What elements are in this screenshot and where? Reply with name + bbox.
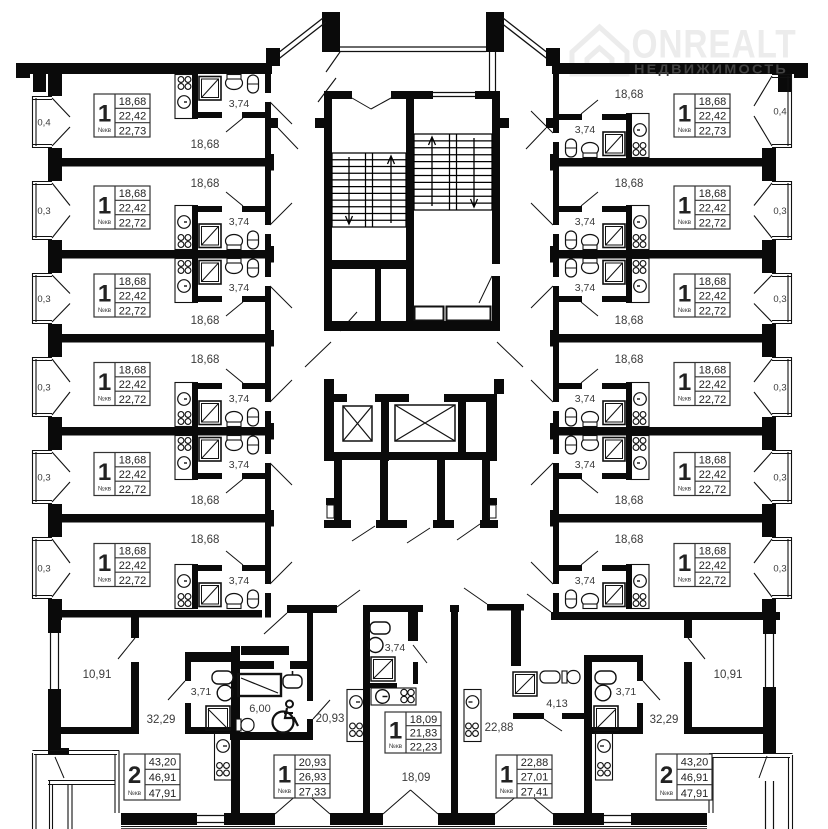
svg-text:18,68: 18,68 <box>191 315 220 327</box>
svg-text:2: 2 <box>660 762 673 789</box>
svg-text:3,74: 3,74 <box>575 124 596 136</box>
svg-text:0,4: 0,4 <box>773 107 786 118</box>
svg-text:22,72: 22,72 <box>699 217 727 229</box>
svg-text:22,72: 22,72 <box>119 575 147 587</box>
svg-text:№кв: №кв <box>98 219 112 226</box>
svg-text:22,42: 22,42 <box>119 291 147 303</box>
svg-text:№кв: №кв <box>660 790 674 797</box>
svg-text:18,68: 18,68 <box>699 96 727 108</box>
svg-text:№кв: №кв <box>500 788 514 795</box>
svg-text:3,74: 3,74 <box>575 216 596 228</box>
svg-text:3,74: 3,74 <box>229 216 250 228</box>
svg-text:1: 1 <box>500 762 513 789</box>
svg-text:18,68: 18,68 <box>119 188 147 200</box>
svg-text:27,33: 27,33 <box>299 786 327 798</box>
svg-text:№кв: №кв <box>98 396 112 403</box>
svg-text:0,3: 0,3 <box>37 294 50 305</box>
svg-text:1: 1 <box>98 281 111 308</box>
svg-text:3,74: 3,74 <box>575 282 596 294</box>
svg-text:3,74: 3,74 <box>229 98 250 110</box>
svg-text:1: 1 <box>678 459 691 486</box>
svg-text:27,41: 27,41 <box>521 786 549 798</box>
svg-text:0,3: 0,3 <box>37 564 50 575</box>
svg-text:18,68: 18,68 <box>119 96 147 108</box>
svg-text:20,93: 20,93 <box>316 713 345 725</box>
svg-text:1: 1 <box>678 369 691 396</box>
svg-text:22,42: 22,42 <box>699 111 727 123</box>
svg-text:22,23: 22,23 <box>410 742 438 754</box>
svg-text:22,72: 22,72 <box>699 484 727 496</box>
svg-text:1: 1 <box>678 101 691 128</box>
svg-text:18,68: 18,68 <box>615 495 644 507</box>
svg-text:№кв: №кв <box>128 790 142 797</box>
svg-text:3,74: 3,74 <box>575 393 596 405</box>
svg-text:0,3: 0,3 <box>773 294 786 305</box>
svg-text:№кв: №кв <box>678 396 692 403</box>
svg-text:3,71: 3,71 <box>191 686 212 698</box>
svg-text:22,42: 22,42 <box>699 379 727 391</box>
svg-text:№кв: №кв <box>98 577 112 584</box>
svg-text:18,68: 18,68 <box>699 455 727 467</box>
svg-text:0,3: 0,3 <box>773 383 786 394</box>
svg-text:18,68: 18,68 <box>699 188 727 200</box>
svg-text:0,3: 0,3 <box>773 206 786 217</box>
svg-text:22,42: 22,42 <box>119 379 147 391</box>
svg-text:№кв: №кв <box>678 127 692 134</box>
svg-text:6,00: 6,00 <box>249 703 270 715</box>
svg-text:32,29: 32,29 <box>147 714 176 726</box>
svg-text:22,72: 22,72 <box>119 305 147 317</box>
svg-text:0,3: 0,3 <box>37 206 50 217</box>
svg-text:22,72: 22,72 <box>699 575 727 587</box>
svg-text:18,68: 18,68 <box>191 534 220 546</box>
svg-text:2: 2 <box>128 762 141 789</box>
svg-text:№кв: №кв <box>389 743 403 750</box>
svg-text:1: 1 <box>389 718 402 745</box>
svg-text:18,09: 18,09 <box>402 772 431 784</box>
svg-text:18,09: 18,09 <box>410 714 438 726</box>
svg-text:22,73: 22,73 <box>699 125 727 137</box>
svg-text:43,20: 43,20 <box>681 757 709 769</box>
svg-text:46,91: 46,91 <box>149 772 177 784</box>
svg-text:№кв: №кв <box>678 307 692 314</box>
svg-text:1: 1 <box>678 550 691 577</box>
svg-text:18,68: 18,68 <box>191 495 220 507</box>
svg-text:26,93: 26,93 <box>299 772 327 784</box>
svg-text:22,42: 22,42 <box>119 469 147 481</box>
svg-text:3,74: 3,74 <box>229 282 250 294</box>
svg-text:22,72: 22,72 <box>119 217 147 229</box>
svg-text:18,68: 18,68 <box>191 178 220 190</box>
svg-text:22,73: 22,73 <box>119 125 147 137</box>
svg-text:1: 1 <box>678 281 691 308</box>
svg-text:47,91: 47,91 <box>149 788 177 800</box>
svg-text:1: 1 <box>678 193 691 220</box>
svg-text:1: 1 <box>278 762 291 789</box>
svg-text:22,72: 22,72 <box>119 394 147 406</box>
svg-text:3,74: 3,74 <box>575 575 596 587</box>
svg-text:3,71: 3,71 <box>616 686 637 698</box>
svg-text:47,91: 47,91 <box>681 788 709 800</box>
svg-text:22,42: 22,42 <box>699 291 727 303</box>
svg-text:22,72: 22,72 <box>699 305 727 317</box>
svg-text:22,72: 22,72 <box>119 484 147 496</box>
svg-text:22,42: 22,42 <box>699 560 727 572</box>
svg-text:3,74: 3,74 <box>229 575 250 587</box>
svg-text:18,68: 18,68 <box>119 546 147 558</box>
svg-text:0,3: 0,3 <box>773 473 786 484</box>
svg-text:18,68: 18,68 <box>699 546 727 558</box>
svg-text:18,68: 18,68 <box>191 354 220 366</box>
svg-text:18,68: 18,68 <box>615 89 644 101</box>
svg-text:3,74: 3,74 <box>385 642 406 654</box>
svg-text:22,88: 22,88 <box>485 722 514 734</box>
svg-text:ONREALT: ONREALT <box>632 23 797 67</box>
svg-text:32,29: 32,29 <box>650 714 679 726</box>
svg-text:3,74: 3,74 <box>575 459 596 471</box>
svg-text:22,42: 22,42 <box>699 469 727 481</box>
svg-text:4,13: 4,13 <box>546 698 567 710</box>
svg-text:0,3: 0,3 <box>37 383 50 394</box>
svg-text:22,42: 22,42 <box>119 111 147 123</box>
svg-text:0,3: 0,3 <box>773 564 786 575</box>
svg-text:НЕДВИЖИМОСТЬ: НЕДВИЖИМОСТЬ <box>634 62 788 77</box>
svg-text:22,72: 22,72 <box>699 394 727 406</box>
svg-text:10,91: 10,91 <box>83 669 112 681</box>
svg-text:22,42: 22,42 <box>699 203 727 215</box>
svg-text:18,68: 18,68 <box>119 276 147 288</box>
svg-text:18,68: 18,68 <box>119 455 147 467</box>
svg-text:№кв: №кв <box>98 486 112 493</box>
svg-text:3,74: 3,74 <box>229 393 250 405</box>
svg-text:46,91: 46,91 <box>681 772 709 784</box>
svg-text:21,83: 21,83 <box>410 728 438 740</box>
svg-text:18,68: 18,68 <box>191 139 220 151</box>
svg-text:27,01: 27,01 <box>521 772 549 784</box>
svg-text:18,68: 18,68 <box>615 534 644 546</box>
svg-text:18,68: 18,68 <box>615 178 644 190</box>
svg-text:№кв: №кв <box>678 486 692 493</box>
svg-text:1: 1 <box>98 550 111 577</box>
svg-text:0,4: 0,4 <box>37 118 50 129</box>
svg-text:22,42: 22,42 <box>119 203 147 215</box>
svg-text:№кв: №кв <box>98 127 112 134</box>
svg-text:№кв: №кв <box>278 788 292 795</box>
svg-text:18,68: 18,68 <box>119 365 147 377</box>
svg-text:№кв: №кв <box>98 307 112 314</box>
svg-text:1: 1 <box>98 101 111 128</box>
svg-text:22,88: 22,88 <box>521 757 549 769</box>
svg-text:10,91: 10,91 <box>714 669 743 681</box>
svg-text:18,68: 18,68 <box>615 315 644 327</box>
svg-text:1: 1 <box>98 369 111 396</box>
svg-text:22,42: 22,42 <box>119 560 147 572</box>
svg-text:18,68: 18,68 <box>699 365 727 377</box>
svg-text:18,68: 18,68 <box>615 354 644 366</box>
svg-text:43,20: 43,20 <box>149 757 177 769</box>
svg-text:№кв: №кв <box>678 577 692 584</box>
svg-text:1: 1 <box>98 193 111 220</box>
svg-text:20,93: 20,93 <box>299 757 327 769</box>
svg-text:0,3: 0,3 <box>37 473 50 484</box>
svg-text:№кв: №кв <box>678 219 692 226</box>
svg-text:3,74: 3,74 <box>229 459 250 471</box>
svg-text:18,68: 18,68 <box>699 276 727 288</box>
svg-text:1: 1 <box>98 459 111 486</box>
